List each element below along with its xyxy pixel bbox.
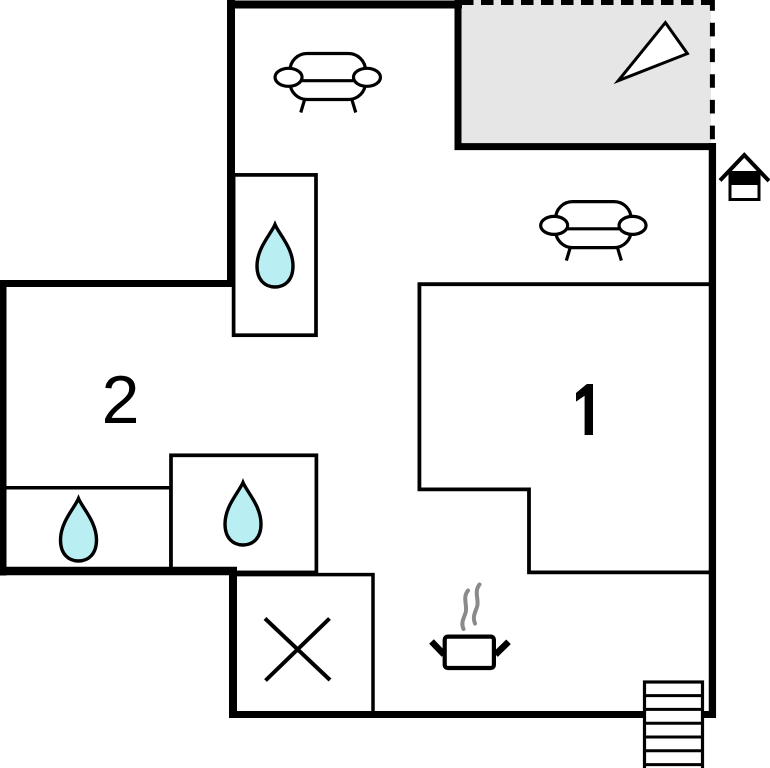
svg-text:2: 2	[102, 362, 140, 438]
